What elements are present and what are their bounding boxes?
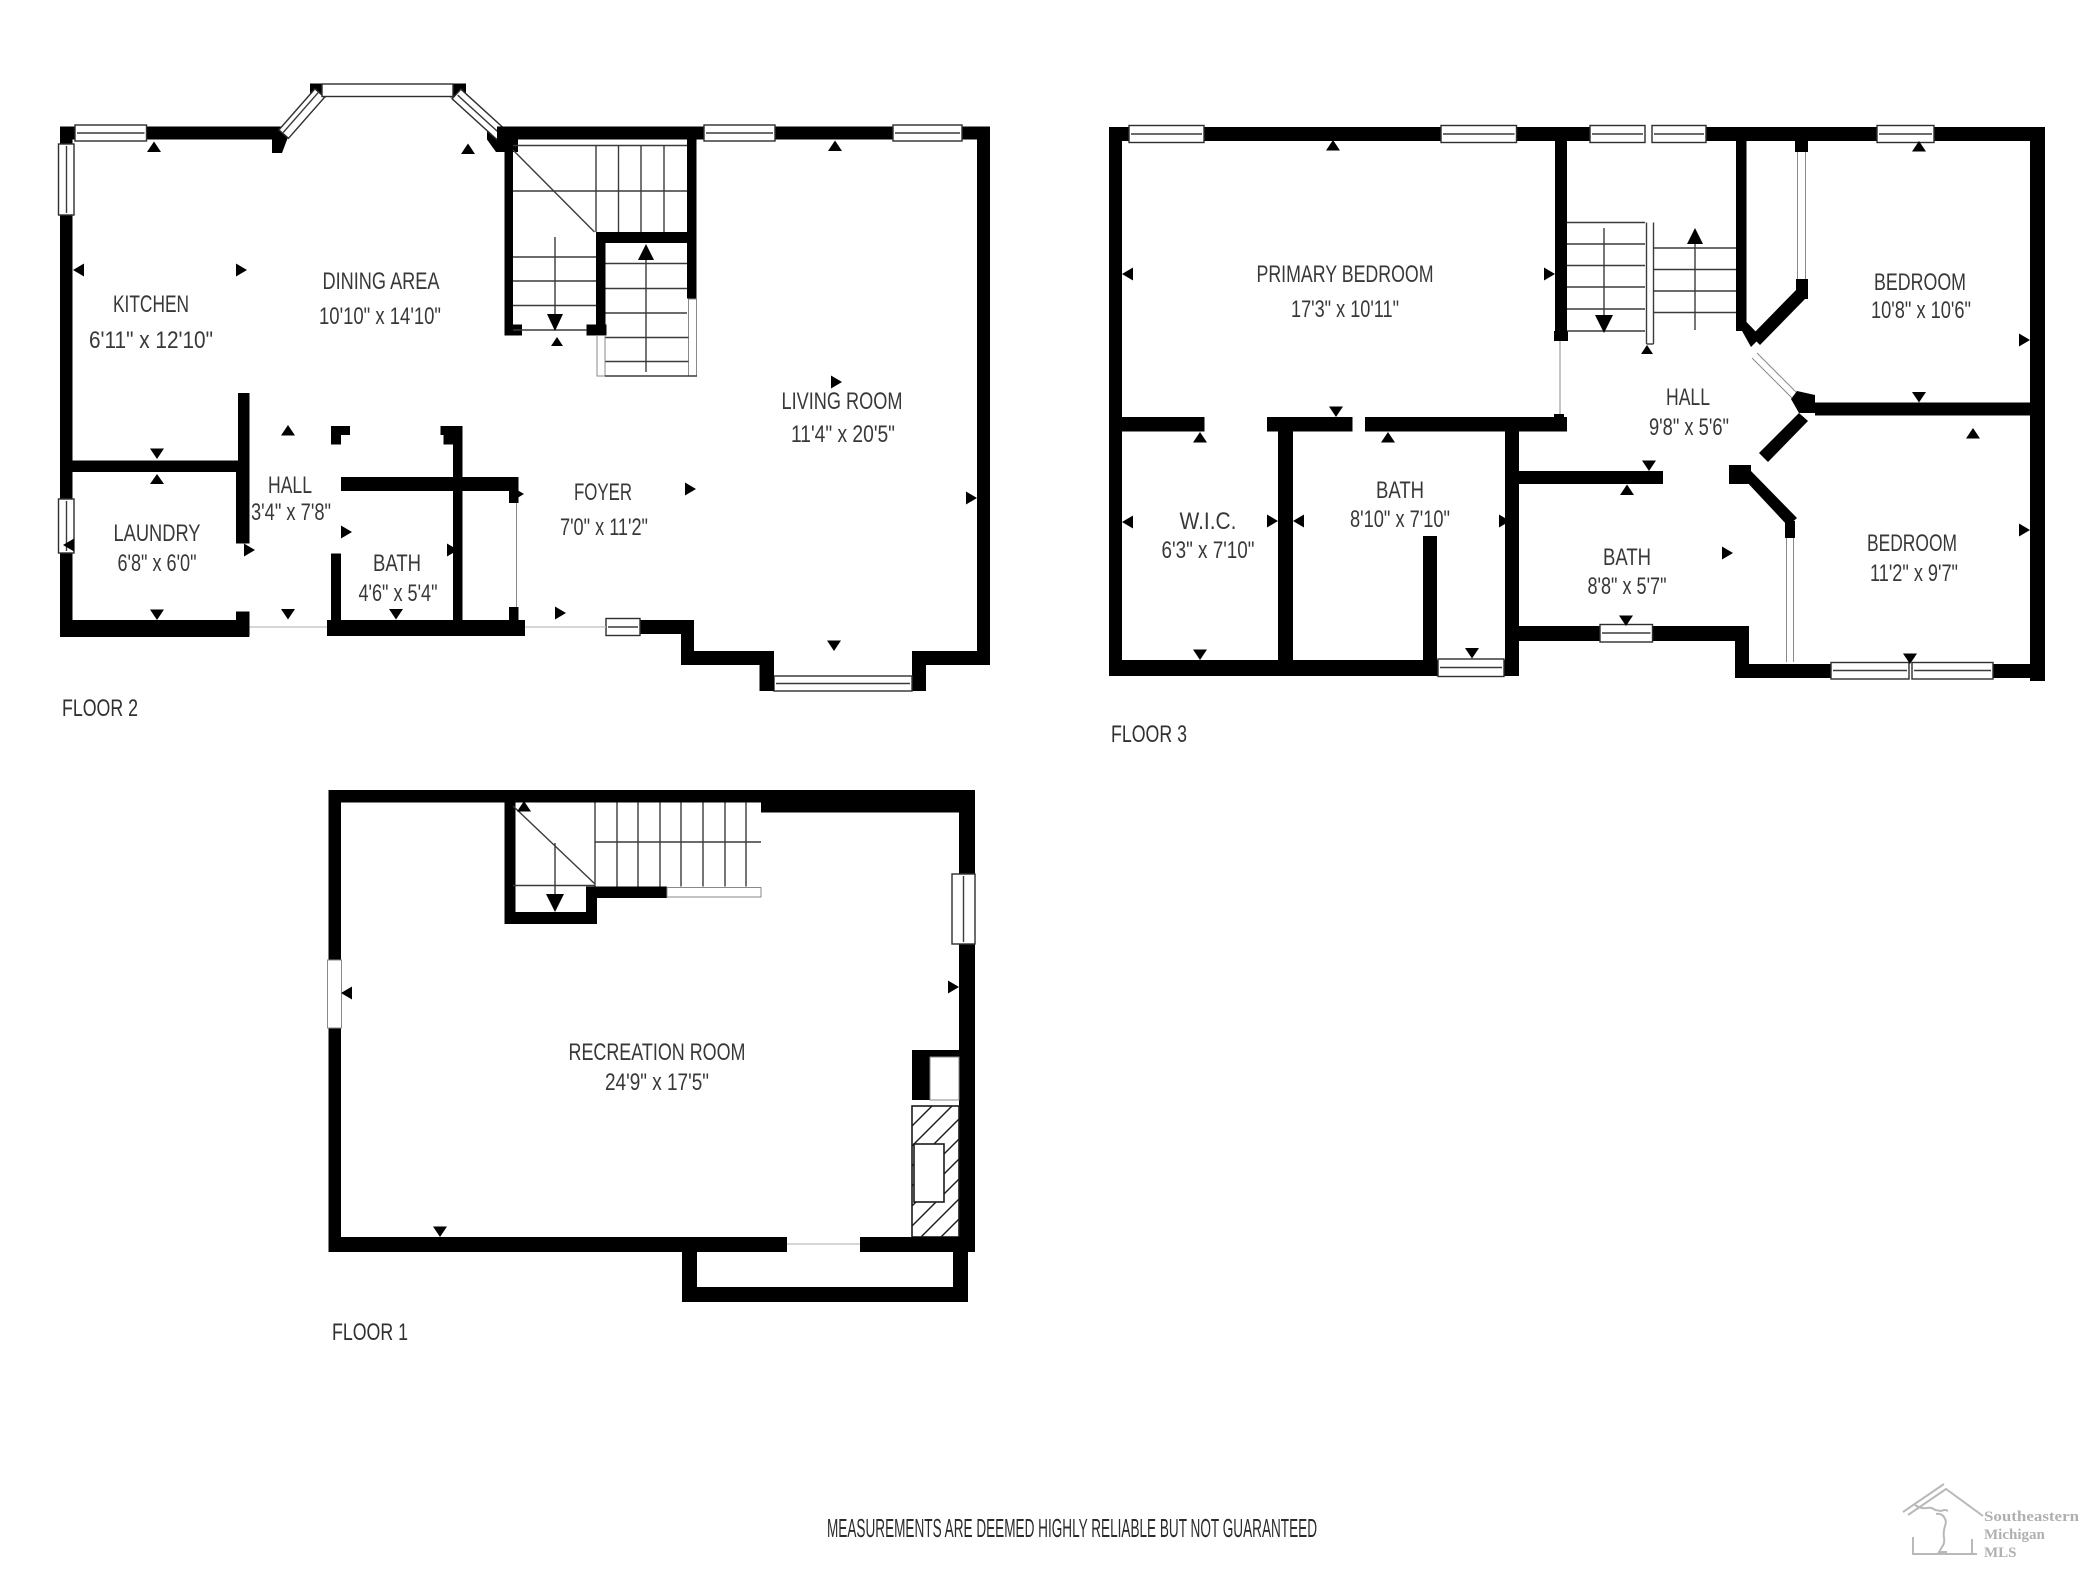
svg-text:W.I.C.: W.I.C. bbox=[1180, 508, 1237, 535]
svg-text:BATH: BATH bbox=[1376, 477, 1424, 504]
svg-text:FLOOR 3: FLOOR 3 bbox=[1111, 721, 1187, 748]
svg-text:DINING AREA: DINING AREA bbox=[323, 268, 440, 295]
svg-text:FOYER: FOYER bbox=[574, 479, 632, 506]
svg-text:LIVING ROOM: LIVING ROOM bbox=[782, 388, 903, 415]
svg-text:Southeastern: Southeastern bbox=[1984, 1509, 2080, 1525]
svg-text:4'6" x 5'4": 4'6" x 5'4" bbox=[359, 580, 438, 607]
svg-text:17'3" x 10'11": 17'3" x 10'11" bbox=[1291, 296, 1399, 323]
svg-text:7'0" x 11'2": 7'0" x 11'2" bbox=[560, 514, 648, 541]
svg-text:MEASUREMENTS ARE DEEMED HIGHLY: MEASUREMENTS ARE DEEMED HIGHLY RELIABLE … bbox=[827, 1513, 1317, 1543]
svg-text:11'2" x 9'7": 11'2" x 9'7" bbox=[1870, 560, 1958, 587]
svg-text:8'10" x 7'10": 8'10" x 7'10" bbox=[1350, 506, 1450, 533]
svg-text:10'8" x 10'6": 10'8" x 10'6" bbox=[1871, 297, 1971, 324]
svg-text:BATH: BATH bbox=[1603, 544, 1651, 571]
svg-text:LAUNDRY: LAUNDRY bbox=[114, 520, 201, 547]
svg-text:8'8" x 5'7": 8'8" x 5'7" bbox=[1588, 573, 1667, 600]
svg-text:RECREATION ROOM: RECREATION ROOM bbox=[569, 1039, 746, 1066]
svg-text:9'8" x 5'6": 9'8" x 5'6" bbox=[1649, 414, 1729, 441]
svg-text:BEDROOM: BEDROOM bbox=[1867, 530, 1957, 557]
svg-text:MLS: MLS bbox=[1984, 1545, 2017, 1561]
svg-text:HALL: HALL bbox=[1666, 384, 1710, 411]
svg-text:BEDROOM: BEDROOM bbox=[1874, 269, 1966, 296]
svg-text:24'9" x 17'5": 24'9" x 17'5" bbox=[605, 1069, 709, 1096]
svg-text:6'8" x 6'0": 6'8" x 6'0" bbox=[118, 550, 197, 577]
svg-text:11'4" x 20'5": 11'4" x 20'5" bbox=[791, 421, 895, 448]
svg-text:KITCHEN: KITCHEN bbox=[113, 291, 189, 318]
svg-text:FLOOR 2: FLOOR 2 bbox=[62, 695, 138, 722]
svg-text:FLOOR 1: FLOOR 1 bbox=[332, 1319, 408, 1346]
svg-text:HALL: HALL bbox=[268, 472, 312, 499]
svg-text:6'3" x 7'10": 6'3" x 7'10" bbox=[1162, 537, 1255, 564]
svg-text:PRIMARY BEDROOM: PRIMARY BEDROOM bbox=[1257, 261, 1434, 288]
svg-text:6'11" x 12'10": 6'11" x 12'10" bbox=[89, 327, 213, 354]
svg-text:BATH: BATH bbox=[373, 550, 421, 577]
svg-text:10'10" x 14'10": 10'10" x 14'10" bbox=[319, 303, 441, 330]
svg-text:Michigan: Michigan bbox=[1984, 1527, 2045, 1543]
svg-text:3'4" x 7'8": 3'4" x 7'8" bbox=[251, 499, 331, 526]
